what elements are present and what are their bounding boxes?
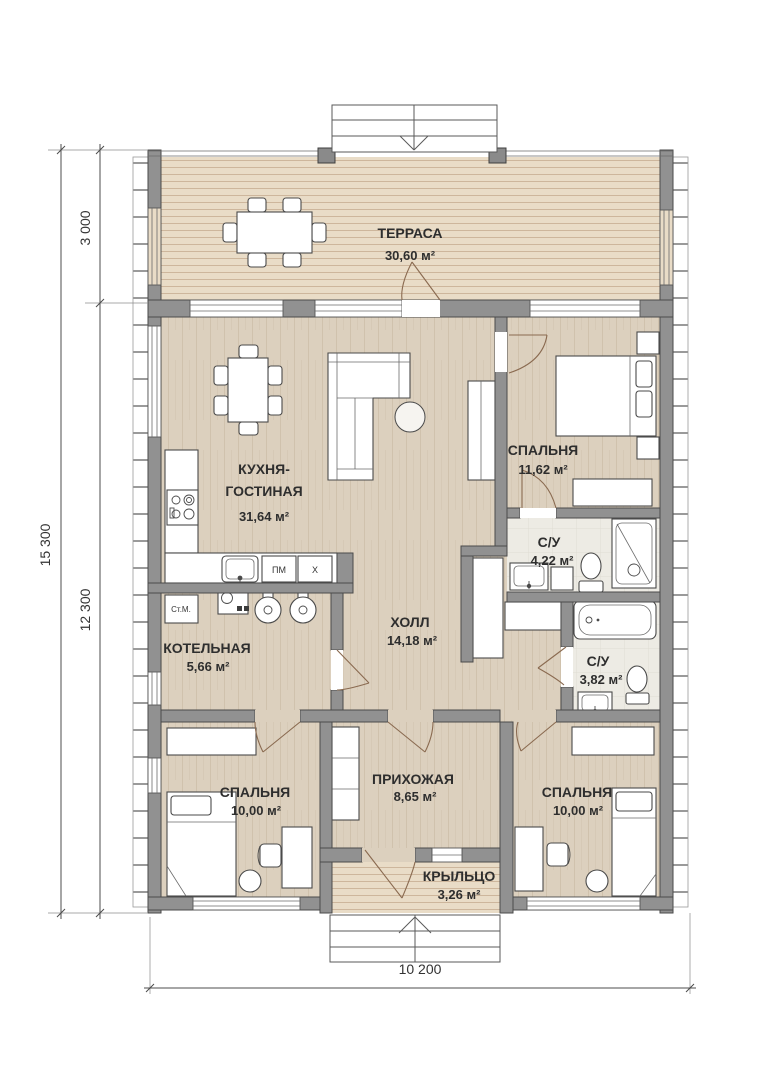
left-desk-chair — [258, 844, 281, 867]
cladding-right — [673, 157, 688, 907]
wall-ensuite-north-b — [556, 508, 660, 518]
svg-text:10 200: 10 200 — [399, 961, 442, 977]
porch-label: КРЫЛЬЦО — [423, 868, 496, 884]
wall-boiler-north — [148, 583, 353, 593]
floor-plan: ТЕРРАСА 30,60 м² КУХНЯ- ГОСТИНАЯ 31,64 м… — [0, 0, 764, 1080]
utility-sink — [218, 591, 249, 614]
window-bottom-right — [527, 897, 640, 910]
dishwasher-label: ПМ — [272, 565, 286, 575]
ensuite-area: 4,22 м² — [531, 553, 575, 568]
left-stool — [239, 870, 261, 892]
terrace-rail-left — [148, 208, 161, 285]
nightstand-bottom — [637, 437, 659, 459]
kitchen-label-2: ГОСТИНАЯ — [225, 483, 302, 499]
wall-bath-west-a — [561, 602, 573, 647]
hall-closet-upper — [468, 381, 495, 480]
dim-overall-width: 10 200 — [144, 961, 696, 992]
steps-bottom — [330, 915, 500, 962]
shower — [612, 519, 656, 588]
dim-overall-depth: 15 300 — [37, 144, 65, 919]
coffee-table — [395, 402, 425, 432]
wall-corridor-b — [300, 710, 388, 722]
boiler-label: КОТЕЛЬНАЯ — [163, 640, 251, 656]
wall-ensuite-north-a — [507, 508, 520, 518]
right-bed — [612, 788, 656, 896]
kitchen-area: 31,64 м² — [239, 509, 290, 524]
main-toilet — [626, 666, 649, 704]
entry-wardrobe — [332, 727, 359, 820]
terrace-label: ТЕРРАСА — [378, 225, 443, 241]
wall-entry-south-a — [320, 848, 362, 862]
ensuite-label: С/У — [538, 534, 561, 550]
wall-hall-lower — [461, 556, 473, 662]
left-bedroom-label: СПАЛЬНЯ — [220, 784, 291, 800]
floor-plan-drawing: ТЕРРАСА 30,60 м² КУХНЯ- ГОСТИНАЯ 31,64 м… — [0, 0, 764, 1080]
svg-text:15 300: 15 300 — [37, 523, 53, 566]
boiler-area: 5,66 м² — [187, 659, 231, 674]
hall-closet-lower — [473, 558, 503, 658]
window-front-bedroom — [530, 300, 640, 317]
hall-label: ХОЛЛ — [390, 614, 429, 630]
stove — [167, 490, 198, 525]
master-bed — [556, 356, 656, 436]
ensuite-cabinet — [551, 567, 573, 590]
wall-corridor-c — [433, 710, 500, 722]
terrace-area: 30,60 м² — [385, 248, 436, 263]
wall-entry-south-b — [415, 848, 432, 862]
terrace-rail-right — [660, 210, 673, 285]
master-bedroom-label: СПАЛЬНЯ — [508, 442, 579, 458]
window-bottom-left — [193, 897, 300, 910]
master-bedroom-area: 11,62 м² — [518, 462, 568, 477]
left-bedroom-closet — [167, 728, 256, 755]
wall-bedroom-left-east — [320, 722, 332, 913]
wall-hall-jog — [461, 546, 507, 556]
entry-sidelight — [432, 848, 462, 862]
right-desk-chair — [547, 843, 570, 866]
svg-text:3 000: 3 000 — [77, 210, 93, 245]
fridge-label: Х — [312, 565, 318, 575]
window-kitchen-left — [148, 326, 161, 437]
window-boiler — [148, 672, 161, 705]
porch-area: 3,26 м² — [438, 887, 482, 902]
hall-closet-wide — [505, 602, 561, 630]
wall-bath-west-b — [561, 687, 573, 710]
master-dresser — [573, 479, 652, 506]
wall-entry-south-c — [462, 848, 500, 862]
right-desk — [515, 827, 543, 891]
ensuite-toilet — [579, 553, 603, 592]
wall-counter-pier — [337, 553, 353, 583]
washing-machine-label: Ст.М. — [171, 605, 191, 614]
main-bathroom-label: С/У — [587, 653, 610, 669]
wall-corridor-d — [556, 710, 660, 722]
window-bedroom-left-side — [148, 758, 161, 793]
left-bed — [167, 792, 236, 896]
right-stool — [586, 870, 608, 892]
wall-boiler-east-b — [331, 690, 343, 710]
cladding-left — [133, 157, 148, 907]
right-bedroom-area: 10,00 м² — [553, 803, 604, 818]
window-front-kitchen — [190, 300, 283, 317]
dim-terrace-depth: 3 000 12 300 — [77, 144, 104, 919]
entry-hall-area: 8,65 м² — [394, 789, 438, 804]
right-bedroom-closet — [572, 727, 654, 755]
entry-hall-label: ПРИХОЖАЯ — [372, 771, 454, 787]
wall-corridor-a — [161, 710, 255, 722]
bathtub — [574, 601, 656, 639]
wall-boiler-east-a — [331, 593, 343, 650]
hall-area: 14,18 м² — [387, 633, 438, 648]
left-bedroom-area: 10,00 м² — [231, 803, 282, 818]
steps-top — [332, 105, 497, 152]
dim-main-depth-text: 12 300 — [77, 588, 93, 631]
left-desk — [282, 827, 312, 888]
right-bedroom-label: СПАЛЬНЯ — [542, 784, 613, 800]
nightstand-top — [637, 332, 659, 354]
wall-bedroom-right-west — [500, 722, 513, 913]
kitchen-label-1: КУХНЯ- — [238, 461, 290, 477]
window-front-living — [315, 300, 402, 317]
wall-ensuite-south — [507, 592, 660, 602]
main-bathroom-area: 3,82 м² — [580, 672, 624, 687]
